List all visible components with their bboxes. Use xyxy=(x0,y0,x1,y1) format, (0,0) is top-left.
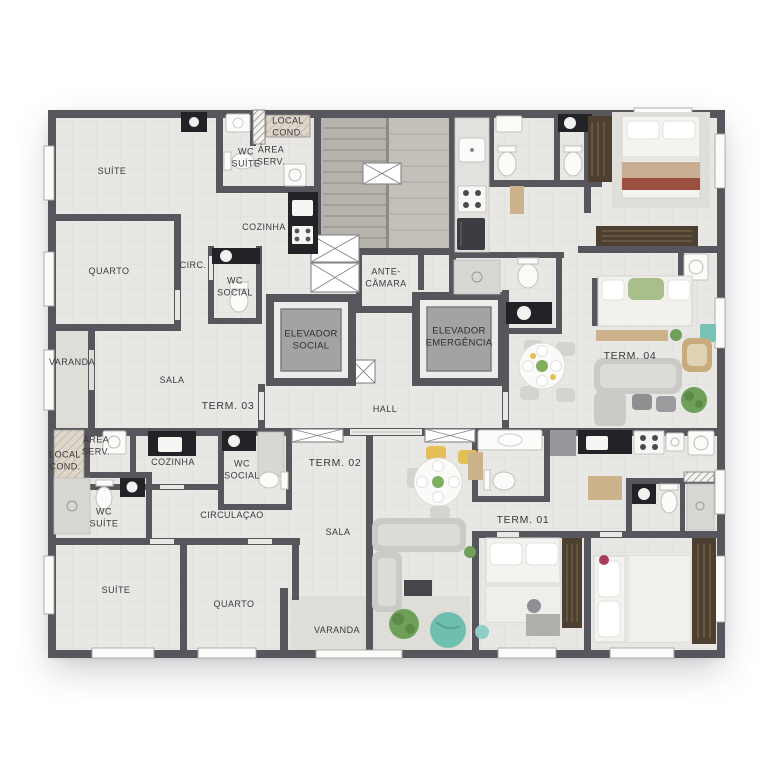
floor-plan-drawing xyxy=(0,0,768,768)
wardrobe xyxy=(596,226,698,246)
bed-b xyxy=(594,555,690,642)
plant xyxy=(681,387,707,413)
elevator-social xyxy=(266,294,356,386)
single-bed xyxy=(598,276,692,326)
armchair xyxy=(682,338,712,372)
wardrobe xyxy=(588,116,612,182)
stair-duct xyxy=(363,163,401,184)
elevator-emergency xyxy=(412,292,506,386)
beanbag xyxy=(430,612,466,648)
plant xyxy=(389,609,419,639)
staircase xyxy=(321,117,449,248)
double-bed xyxy=(612,112,710,208)
wardrobe xyxy=(692,538,716,644)
floor-plan-canvas: SUÍTE WC SUÍTE LOCAL COND. ÁREA SERV. CO… xyxy=(0,0,768,768)
wardrobe xyxy=(562,538,582,628)
bed-a xyxy=(486,538,560,622)
